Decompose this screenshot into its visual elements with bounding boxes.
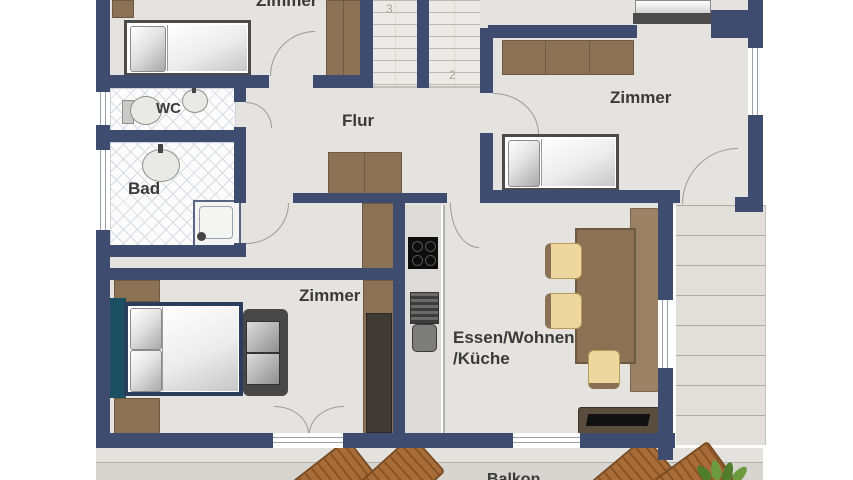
wall: [417, 0, 429, 88]
dresser-bottom: [114, 398, 160, 438]
pillow: [130, 350, 162, 392]
bad-sink: [142, 149, 180, 182]
blanket: [167, 25, 247, 71]
plant: [695, 460, 755, 480]
dining-table: [575, 228, 636, 364]
dining-chair: [545, 243, 582, 279]
sofa-cushion: [246, 353, 280, 385]
kitchen-sink: [412, 324, 437, 352]
window: [658, 300, 673, 368]
burner-icon: [412, 241, 423, 252]
shower: [193, 200, 241, 247]
wardrobe-mid: [362, 203, 394, 272]
wardrobe-top-right: [502, 40, 634, 75]
window: [748, 48, 763, 115]
room-label-living-line2: /Küche: [453, 349, 510, 369]
window: [96, 150, 110, 230]
wall: [110, 130, 246, 142]
wall: [488, 190, 680, 203]
blanket: [162, 307, 238, 391]
dining-chair: [545, 293, 582, 329]
floor-plan: 3 2: [0, 0, 853, 480]
room-label-bad: Bad: [128, 179, 160, 199]
tv-icon: [586, 414, 651, 426]
wall: [658, 368, 673, 460]
cooktop: [408, 237, 438, 269]
kitchen-appliance: [410, 292, 439, 324]
stair-number-2: 2: [449, 68, 456, 82]
bed-cutoff-frame: [633, 13, 711, 24]
staircase-right: [673, 205, 766, 445]
wardrobe-hall: [328, 152, 402, 195]
bed-single-top-right: [502, 134, 619, 191]
wall: [735, 197, 763, 212]
dining-chair: [588, 350, 620, 389]
room-label-flur: Flur: [342, 111, 374, 131]
wall: [96, 245, 246, 257]
stair-number-3: 3: [386, 2, 393, 16]
staircase-upper-left-flight: [373, 0, 417, 88]
bed-single-top-left: [124, 20, 251, 76]
sofa-cushion: [246, 321, 280, 353]
room-label-zimmer-top-right: Zimmer: [610, 88, 671, 108]
wall: [658, 203, 673, 300]
bed-double: [124, 302, 243, 396]
tv-lowboard: [578, 407, 664, 435]
window: [96, 92, 110, 125]
shower-head-icon: [197, 232, 206, 241]
wall: [488, 25, 637, 38]
room-label-balkon: Balkon: [487, 471, 540, 480]
room-label-living-line1: Essen/Wohnen: [453, 328, 575, 348]
wall: [393, 203, 405, 433]
pillow: [130, 26, 166, 72]
wall: [96, 268, 396, 280]
wardrobe-top-left: [326, 0, 362, 80]
room-label-zimmer-top-left: Zimmer: [256, 0, 317, 11]
wall: [343, 433, 513, 448]
nightstand: [112, 0, 134, 18]
burner-icon: [425, 255, 436, 266]
balcony-door-opening: [273, 433, 343, 448]
room-label-wc: WC: [156, 100, 181, 117]
balcony-window-door: [513, 433, 580, 448]
wall: [748, 0, 763, 48]
wall: [360, 0, 373, 88]
wall: [96, 433, 273, 448]
wall: [234, 75, 246, 102]
wall: [293, 193, 447, 203]
wall: [234, 143, 246, 203]
burner-icon: [425, 241, 436, 252]
pillow: [508, 140, 540, 187]
pillow: [130, 308, 162, 350]
sofa: [243, 309, 288, 396]
burner-icon: [412, 255, 423, 266]
wardrobe-dark-front: [366, 313, 392, 433]
blanket: [541, 139, 615, 186]
room-label-zimmer-bottom-left: Zimmer: [299, 286, 360, 306]
bad-sink-tap-icon: [158, 144, 163, 153]
